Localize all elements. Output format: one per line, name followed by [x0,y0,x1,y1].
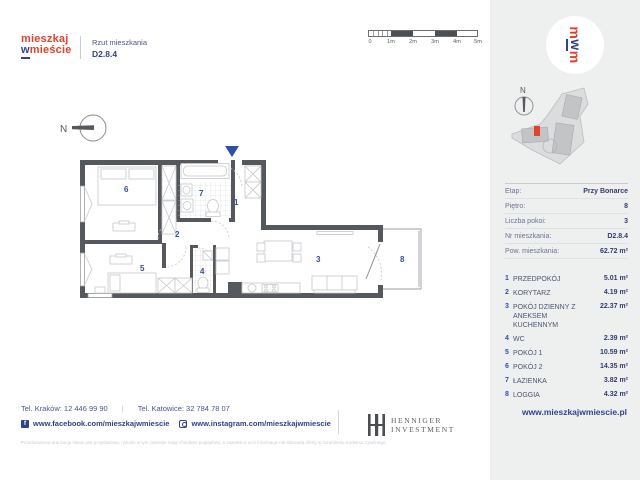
detail-value: 62.72 m² [600,248,628,255]
room-list-item: 3 POKÓJ DZIENNY Z ANEKSEM KUCHENNYM 22.3… [505,303,628,330]
room-item-number: 6 [505,363,513,370]
logo-m1: m [567,26,583,39]
apartment-details-table: Etap: Przy Bonarce Piętro: 8 Liczba poko… [505,183,628,259]
room-number-7: 7 [199,189,204,198]
compass-n-label: N [60,124,67,135]
detail-value: 3 [624,218,628,225]
website-link[interactable]: www.mieszkajwmiescie.pl [522,407,627,417]
compass: N [60,115,106,141]
brand-line1: HENNIGER [391,416,455,425]
logo-m2: m [567,51,583,64]
detail-row-liczba-pokoi: Liczba pokoi: 3 [505,214,628,229]
floorplan-page: mieszkaj wmieście Rzut mieszkania D2.8.4… [0,0,640,480]
room-number-1: 1 [234,198,239,207]
detail-row-etap: Etap: Przy Bonarce [505,184,628,199]
room-item-name: ŁAZIENKA [513,377,591,386]
instagram-icon [179,420,187,428]
room-item-name: PRZEDPOKÓJ [513,275,591,284]
room-number-8: 8 [400,255,405,264]
facebook-link[interactable]: www.facebook.com/mieszkajwmiescie [33,419,169,428]
site-location-map: N [502,84,628,180]
room-item-number: 7 [505,377,513,384]
room-list-item: 7 ŁAZIENKA 3.82 m² [505,377,628,386]
henniger-brand-text: HENNIGER INVESTMENT [391,416,455,434]
detail-value: 8 [624,203,628,210]
detail-row-powierzchnia: Pow. mieszkania: 62.72 m² [505,244,628,259]
room-item-name: POKÓJ DZIENNY Z ANEKSEM KUCHENNYM [513,303,591,330]
bathroom-fixtures [178,164,231,219]
room-item-name: WC [513,335,591,344]
room-number-3: 3 [316,255,321,264]
room-number-6: 6 [124,185,129,194]
detail-row-pietro: Piętro: 8 [505,199,628,214]
map-compass-n: N [520,86,526,95]
entrance-arrow-icon [225,146,239,157]
room-item-area: 4.19 m² [604,289,628,296]
room-item-number: 1 [505,275,513,282]
room-item-name: POKÓJ 1 [513,349,591,358]
room-item-area: 10.59 m² [600,349,628,356]
henniger-investment-logo: HENNIGER INVESTMENT [368,414,455,436]
room-list-item: 4 WC 2.39 m² [505,335,628,344]
room-list-item: 1 PRZEDPOKÓJ 5.01 m² [505,275,628,284]
detail-value: Przy Bonarce [583,188,628,195]
henniger-monogram-icon [368,414,385,436]
mwm-logo-text: mwm [546,16,604,74]
phone-katowice: Tel. Katowice: 32 784 78 07 [138,404,230,413]
room-item-area: 4.32 m² [604,391,628,398]
room-item-number: 2 [505,289,513,296]
room-item-name: LOGGIA [513,391,591,400]
unit-location-marker [534,126,540,136]
mwm-logo-badge: mwm [546,16,604,74]
detail-label: Liczba pokoi: [505,218,546,225]
phone-separator: | [122,404,124,413]
room-item-number: 4 [505,335,513,342]
detail-label: Pow. mieszkania: [505,248,559,255]
detail-label: Etap: [505,188,521,195]
facebook-icon: f [21,420,29,428]
instagram-link[interactable]: www.instagram.com/mieszkajwmiescie [191,419,330,428]
room-item-area: 14.35 m² [600,363,628,370]
detail-label: Nr mieszkania: [505,233,551,240]
room-item-area: 3.82 m² [604,377,628,384]
room-item-name: POKÓJ 2 [513,363,591,372]
detail-row-nr-mieszkania: Nr mieszkania: D2.8.4 [505,229,628,244]
room-list: 1 PRZEDPOKÓJ 5.01 m² 2 KORYTARZ 4.19 m² … [505,275,628,405]
bedroom2-furniture [98,167,156,231]
footer-divider [338,410,339,434]
brand-line2: INVESTMENT [391,425,455,434]
social-links: f www.facebook.com/mieszkajwmiescie www.… [21,419,331,428]
room-item-name: KORYTARZ [513,289,591,298]
room-item-number: 8 [505,391,513,398]
logo-w2: w [566,39,584,50]
room-list-item: 5 POKÓJ 1 10.59 m² [505,349,628,358]
room-list-item: 8 LOGGIA 4.32 m² [505,391,628,400]
room-item-area: 2.39 m² [604,335,628,342]
room-item-area: 5.01 m² [604,275,628,282]
room-item-area: 22.37 m² [600,303,628,310]
phone-krakow: Tel. Kraków: 12 446 99 90 [21,404,108,413]
legal-disclaimer: Przedstawiona aranżacja lokalu jest przy… [21,440,471,445]
info-sidebar: mwm N Etap: Przy Bonarce [490,0,640,480]
detail-value: D2.8.4 [607,233,628,240]
detail-label: Piętro: [505,203,525,210]
bedroom1-furniture [95,254,156,293]
room-number-5: 5 [140,264,145,273]
map-compass: N [515,86,533,115]
room-list-item: 2 KORYTARZ 4.19 m² [505,289,628,298]
room-number-4: 4 [200,267,205,276]
balcony-door [366,244,380,279]
room-item-number: 3 [505,303,513,310]
room-list-item: 6 POKÓJ 2 14.35 m² [505,363,628,372]
room-item-number: 5 [505,349,513,356]
phone-numbers: Tel. Kraków: 12 446 99 90|Tel. Katowice:… [21,404,230,413]
room-number-2: 2 [175,230,180,239]
